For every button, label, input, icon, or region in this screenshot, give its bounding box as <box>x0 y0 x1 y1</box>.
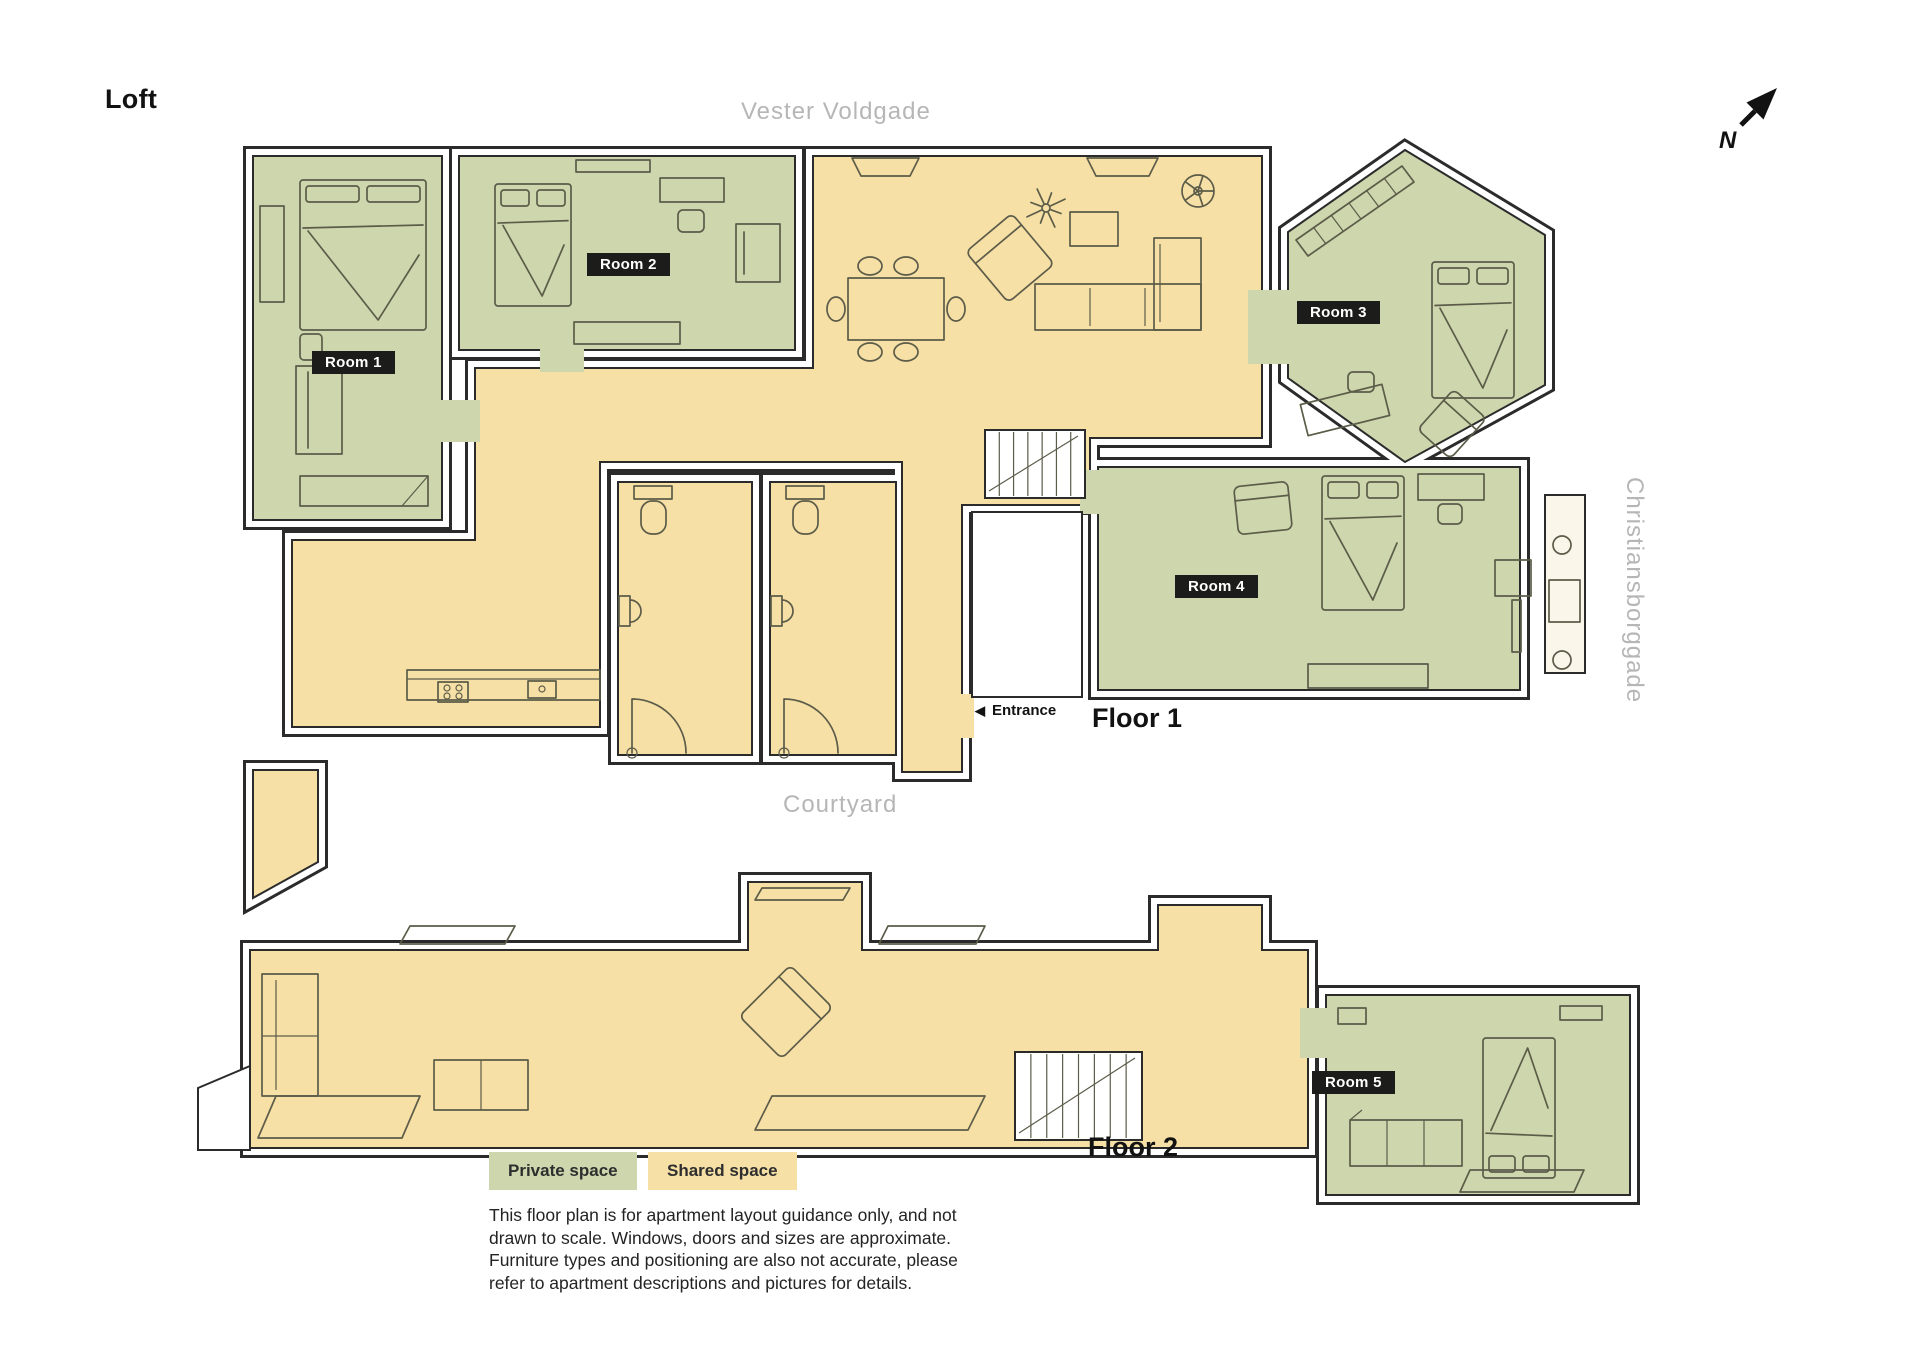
street-label-top: Vester Voldgade <box>741 98 931 126</box>
floor-2-label: Floor 2 <box>1088 1132 1178 1163</box>
room-label-3: Room 3 <box>1297 301 1380 324</box>
legend-private-chip: Private space <box>489 1152 637 1190</box>
floor-1-label: Floor 1 <box>1092 703 1182 734</box>
floor2-terrace-wedge <box>198 1066 250 1150</box>
north-arrow-tail <box>1741 111 1755 125</box>
room-label-2: Room 2 <box>587 253 670 276</box>
room-label-4: Room 4 <box>1175 575 1258 598</box>
north-letter: N <box>1719 127 1737 154</box>
room-1-floor <box>253 156 442 520</box>
room-label-5: Room 5 <box>1312 1071 1395 1094</box>
entrance-arrow-icon: ◀ <box>975 704 985 717</box>
north-arrow-icon: N <box>1705 78 1805 173</box>
courtyard-label: Courtyard <box>783 791 897 819</box>
room-label-1: Room 1 <box>312 351 395 374</box>
street-label-right: Christiansborggade <box>1620 477 1648 807</box>
entrance-marker: ◀ Entrance <box>975 702 1056 719</box>
floor-plan-page: Loft Vester Voldgade Christiansborggade … <box>0 0 1920 1357</box>
entrance-label: Entrance <box>992 702 1056 719</box>
legend-shared-chip: Shared space <box>648 1152 797 1190</box>
disclaimer-text: This floor plan is for apartment layout … <box>489 1204 967 1294</box>
page-title: Loft <box>105 84 157 115</box>
room-5-floor <box>1326 995 1630 1195</box>
